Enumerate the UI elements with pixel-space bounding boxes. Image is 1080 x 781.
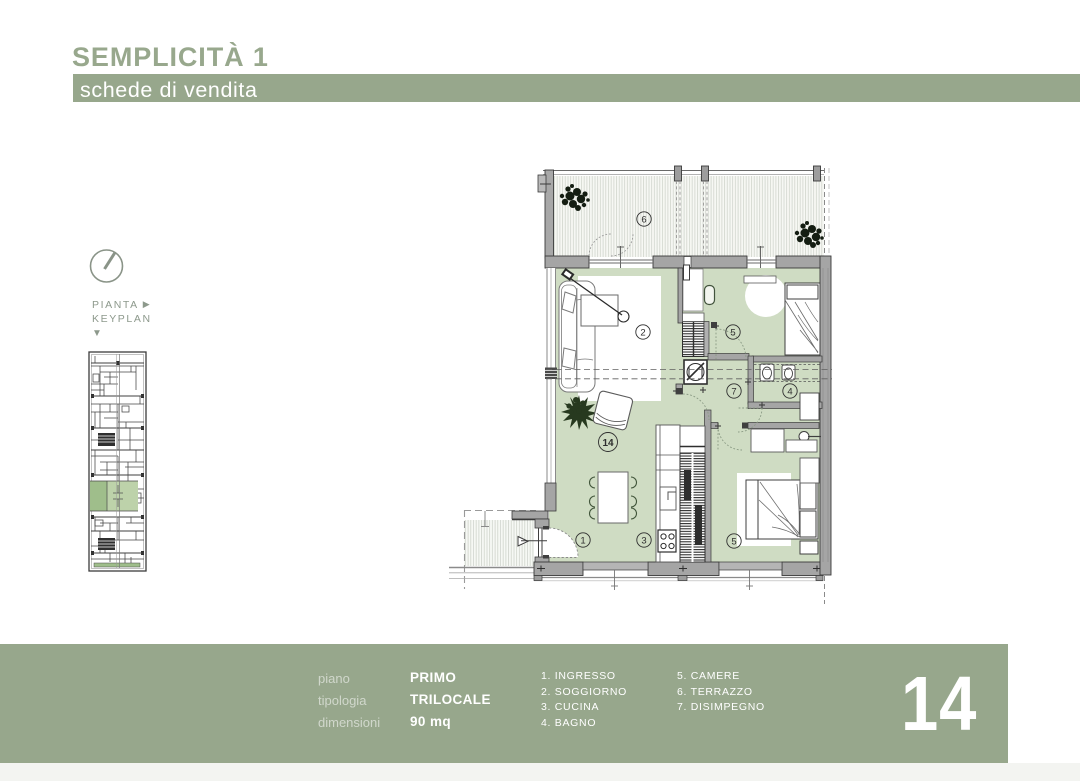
svg-text:5: 5 [730,327,735,338]
svg-text:4: 4 [787,386,792,397]
svg-text:2: 2 [640,327,645,338]
svg-text:3: 3 [641,535,646,546]
svg-text:7: 7 [731,386,736,397]
svg-text:14: 14 [602,438,614,449]
svg-text:6: 6 [641,214,646,225]
svg-text:5: 5 [731,536,736,547]
svg-text:1: 1 [580,535,585,546]
